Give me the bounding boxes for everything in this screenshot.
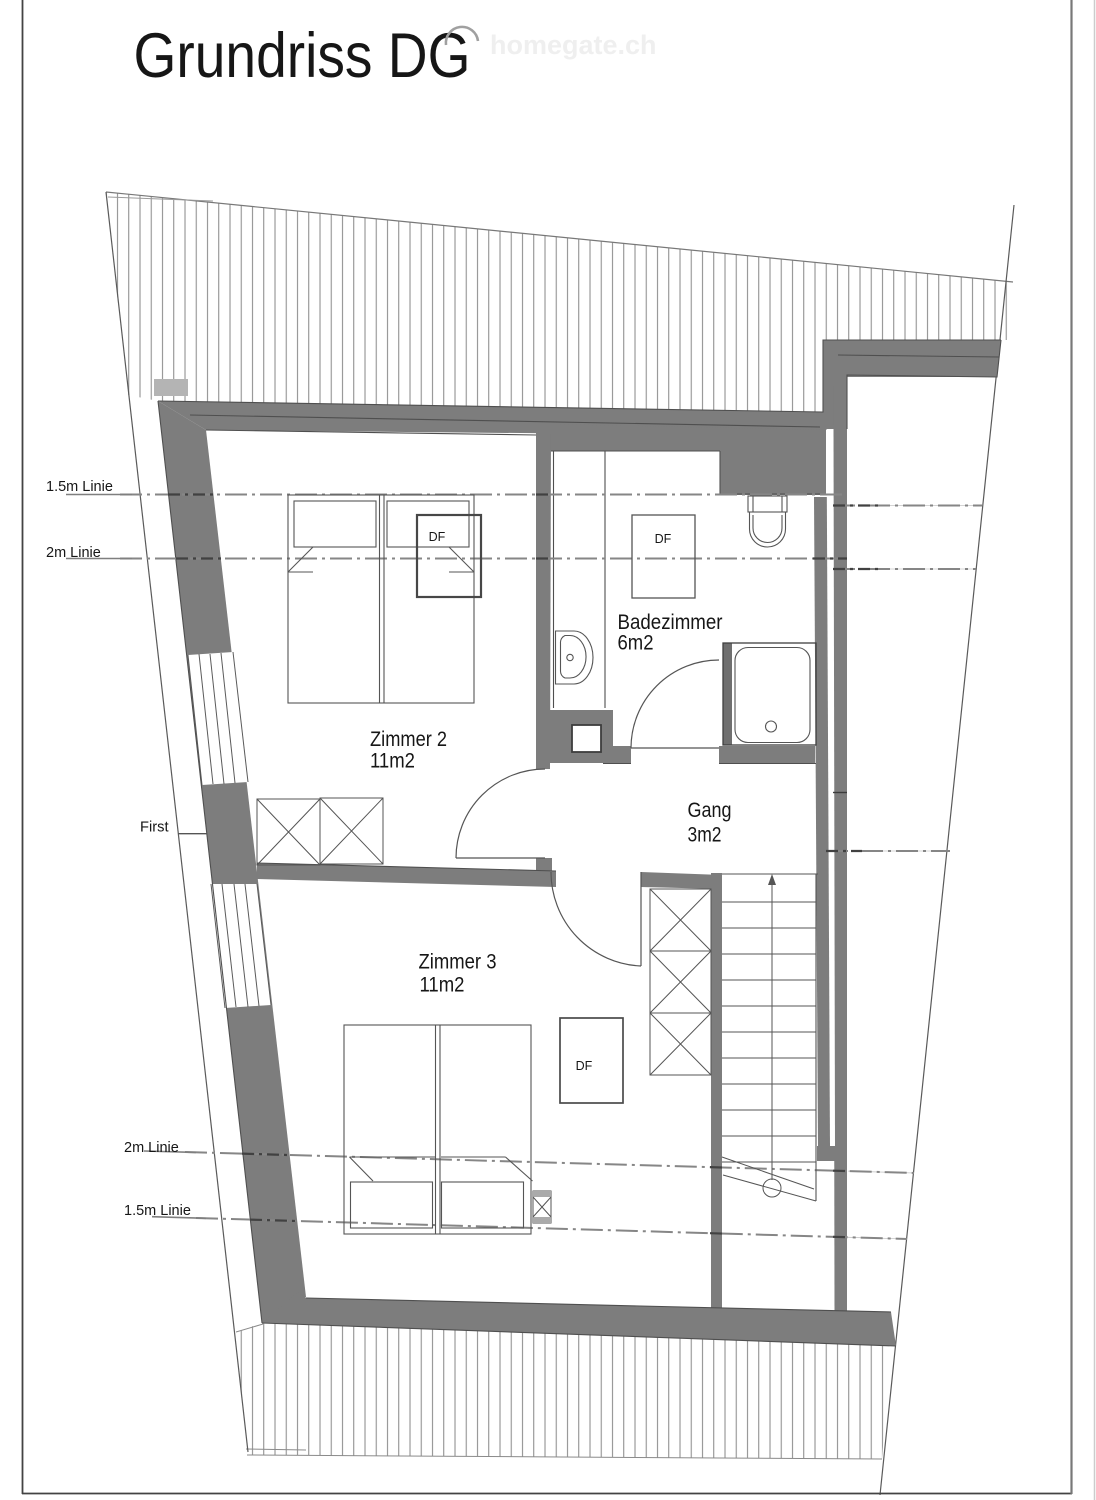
svg-text:DF: DF xyxy=(655,532,672,546)
svg-text:homegate.ch: homegate.ch xyxy=(490,30,657,60)
svg-text:2m Linie: 2m Linie xyxy=(124,1140,179,1156)
svg-text:Gang: Gang xyxy=(688,799,732,822)
svg-text:3m2: 3m2 xyxy=(688,824,722,847)
svg-text:Zimmer 2: Zimmer 2 xyxy=(370,728,447,751)
svg-text:11m2: 11m2 xyxy=(420,973,465,996)
svg-text:DF: DF xyxy=(576,1059,593,1073)
svg-text:Zimmer 3: Zimmer 3 xyxy=(419,951,497,974)
svg-text:1.5m Linie: 1.5m Linie xyxy=(46,479,113,495)
svg-text:1.5m Linie: 1.5m Linie xyxy=(124,1203,191,1219)
svg-text:Grundriss DG: Grundriss DG xyxy=(134,21,471,91)
svg-text:6m2: 6m2 xyxy=(618,631,654,654)
svg-text:11m2: 11m2 xyxy=(370,749,415,772)
svg-text:First: First xyxy=(140,820,169,836)
svg-text:DF: DF xyxy=(429,530,446,544)
svg-text:2m Linie: 2m Linie xyxy=(46,545,101,561)
